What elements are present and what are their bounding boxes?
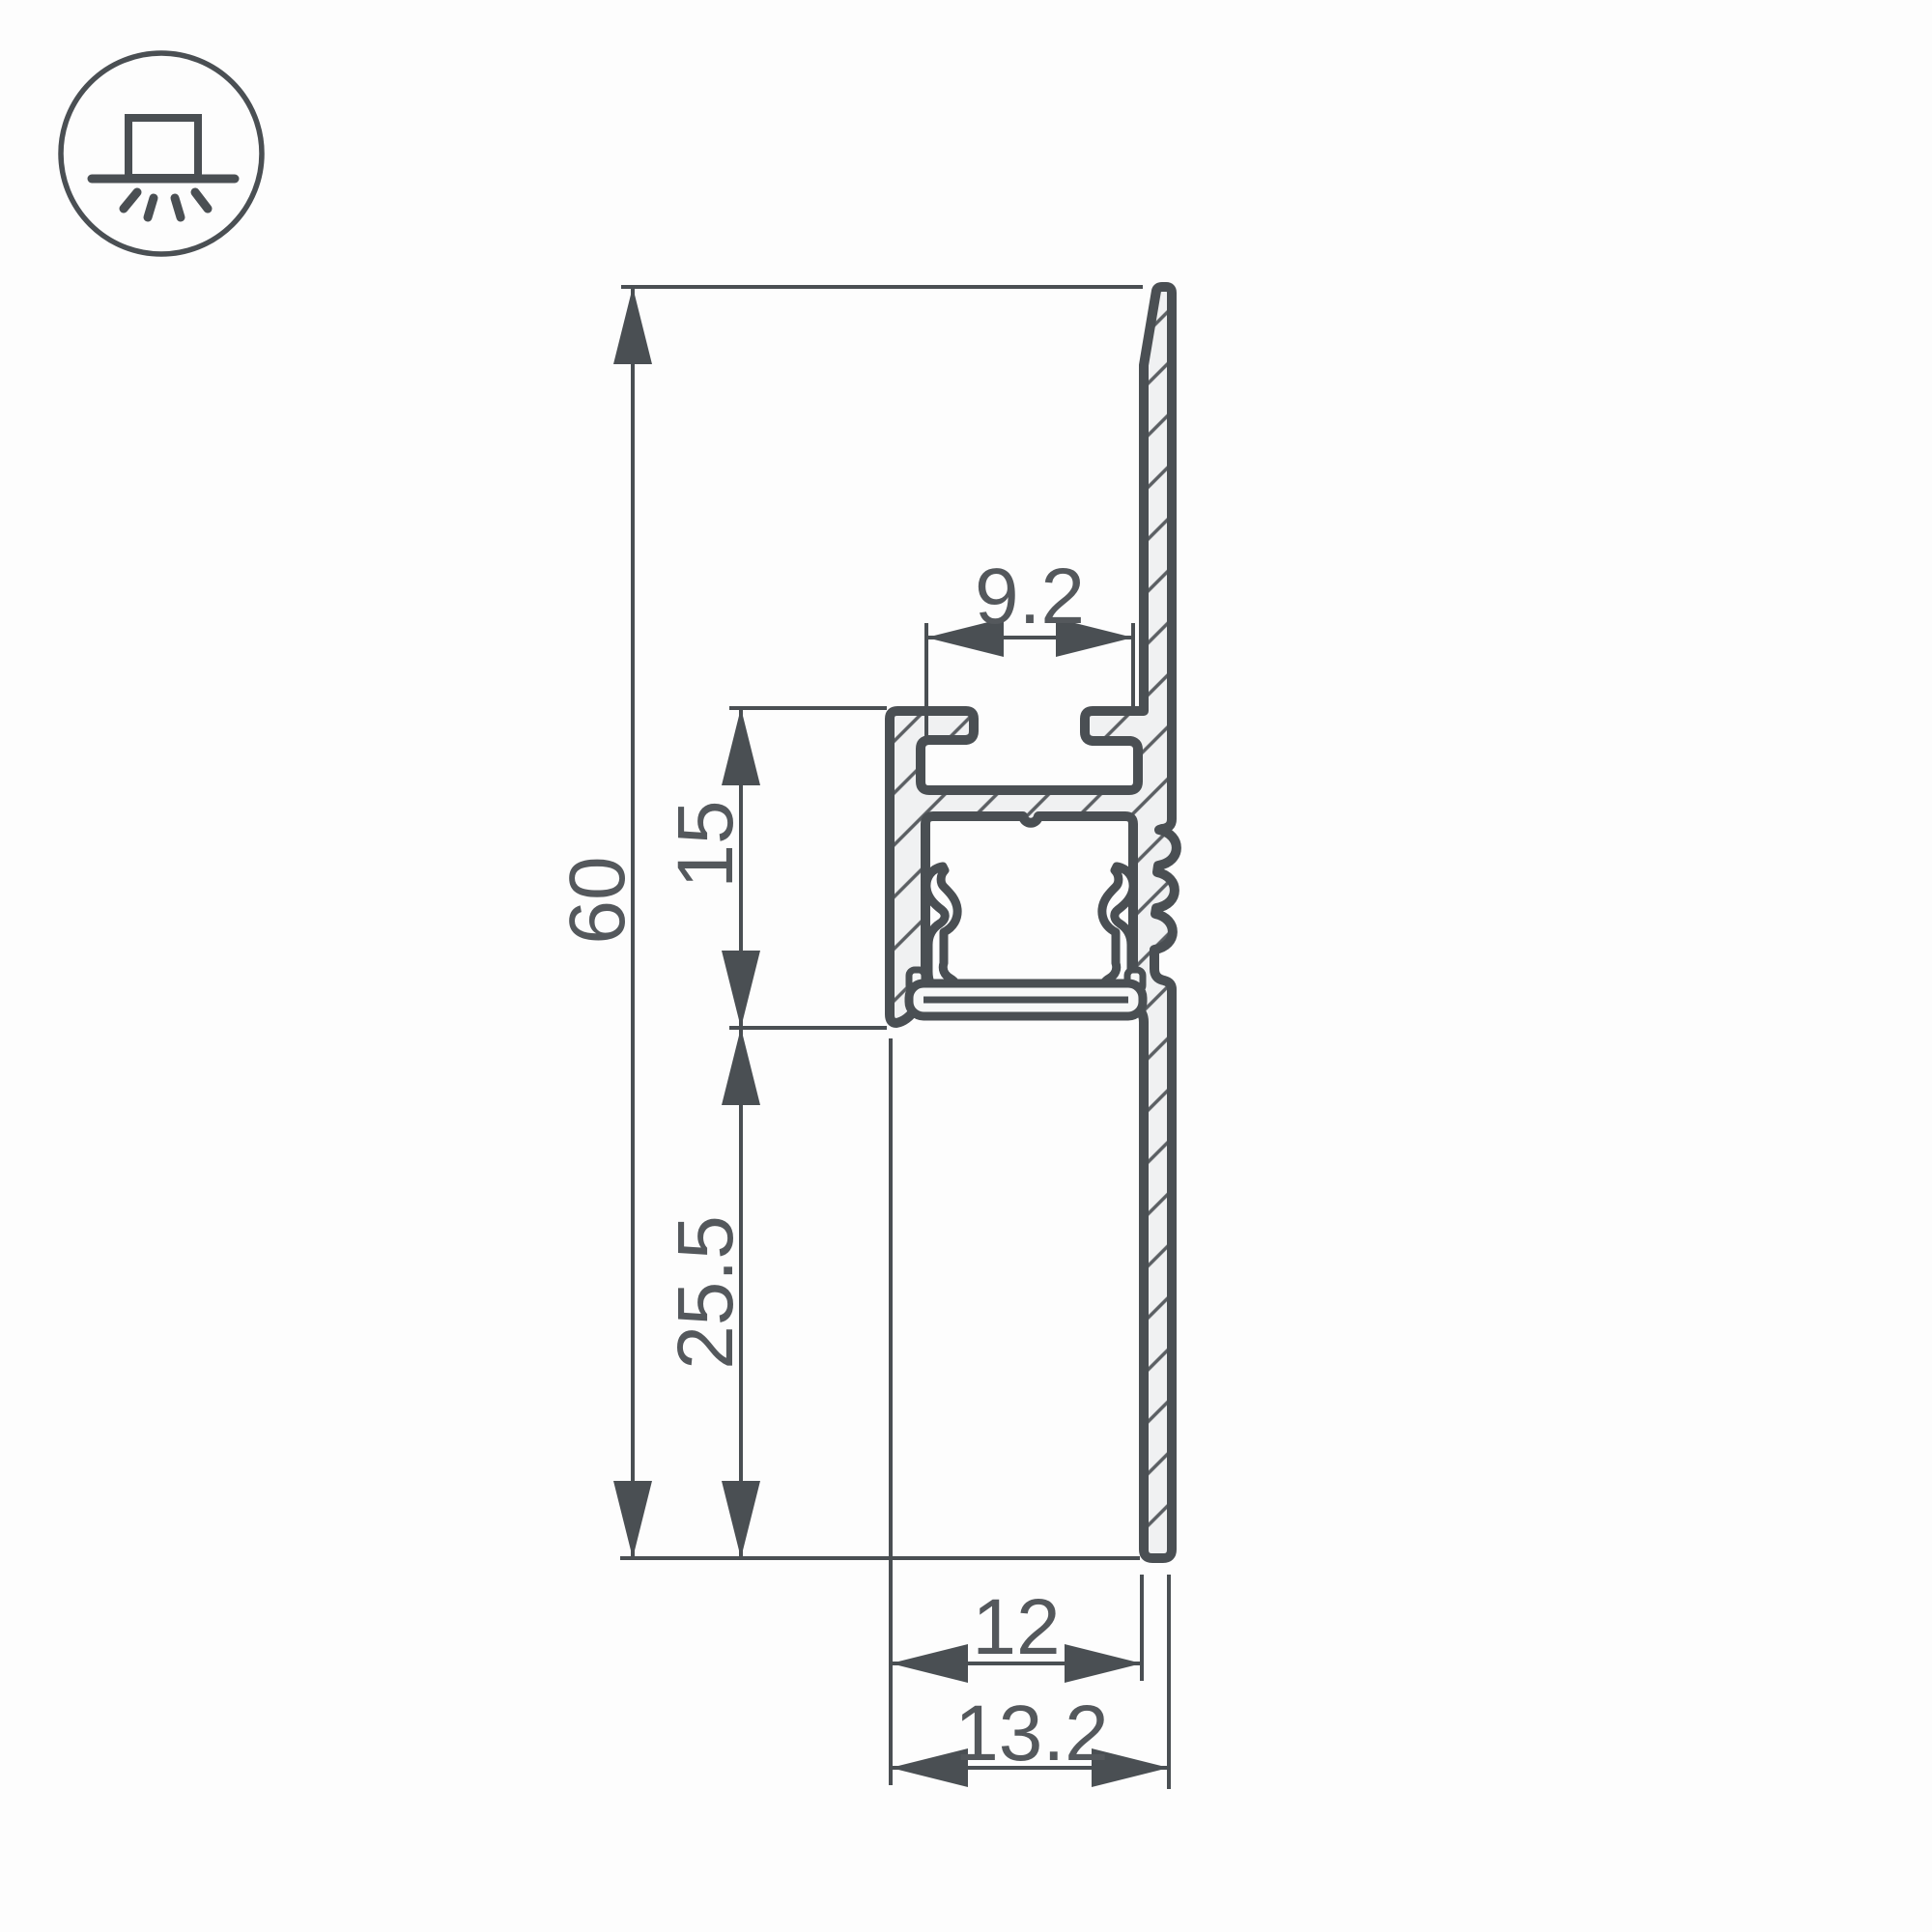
icon-light-rays <box>124 192 208 217</box>
arrow-up <box>722 708 760 785</box>
surface-light-icon <box>61 53 262 254</box>
dimension-label-9-2: 9.2 <box>975 553 1085 640</box>
dimensions: 60 15 25.5 9.2 <box>554 287 1169 1789</box>
dimension-label-13-2: 13.2 <box>954 1690 1109 1777</box>
dimension-label-12: 12 <box>972 1583 1060 1671</box>
technical-drawing-page: 60 15 25.5 9.2 <box>0 0 1932 1932</box>
arrow-up <box>722 1028 760 1105</box>
dimension-base-width: 12 <box>891 1038 1142 1785</box>
icon-lamp-box <box>128 118 198 178</box>
dimension-label-15: 15 <box>662 800 750 888</box>
profile-body-hatching <box>890 287 1177 1558</box>
dimension-total-height: 60 <box>554 287 1143 1558</box>
dimension-channel-height: 15 <box>662 708 887 1028</box>
arrow-down <box>613 1481 652 1558</box>
arrow-right <box>1065 1644 1142 1683</box>
spring-clip-left <box>926 867 957 996</box>
arrow-down <box>722 951 760 1028</box>
dimension-lower-section: 25.5 <box>662 1028 760 1558</box>
icon-circle <box>61 53 262 254</box>
arrow-left <box>891 1644 968 1683</box>
arrow-up <box>613 287 652 364</box>
technical-drawing: 60 15 25.5 9.2 <box>0 0 1932 1932</box>
dimension-label-25-5: 25.5 <box>662 1215 750 1370</box>
profile-cross-section <box>890 287 1177 1558</box>
dimension-label-60: 60 <box>554 856 641 944</box>
arrow-down <box>722 1481 760 1558</box>
